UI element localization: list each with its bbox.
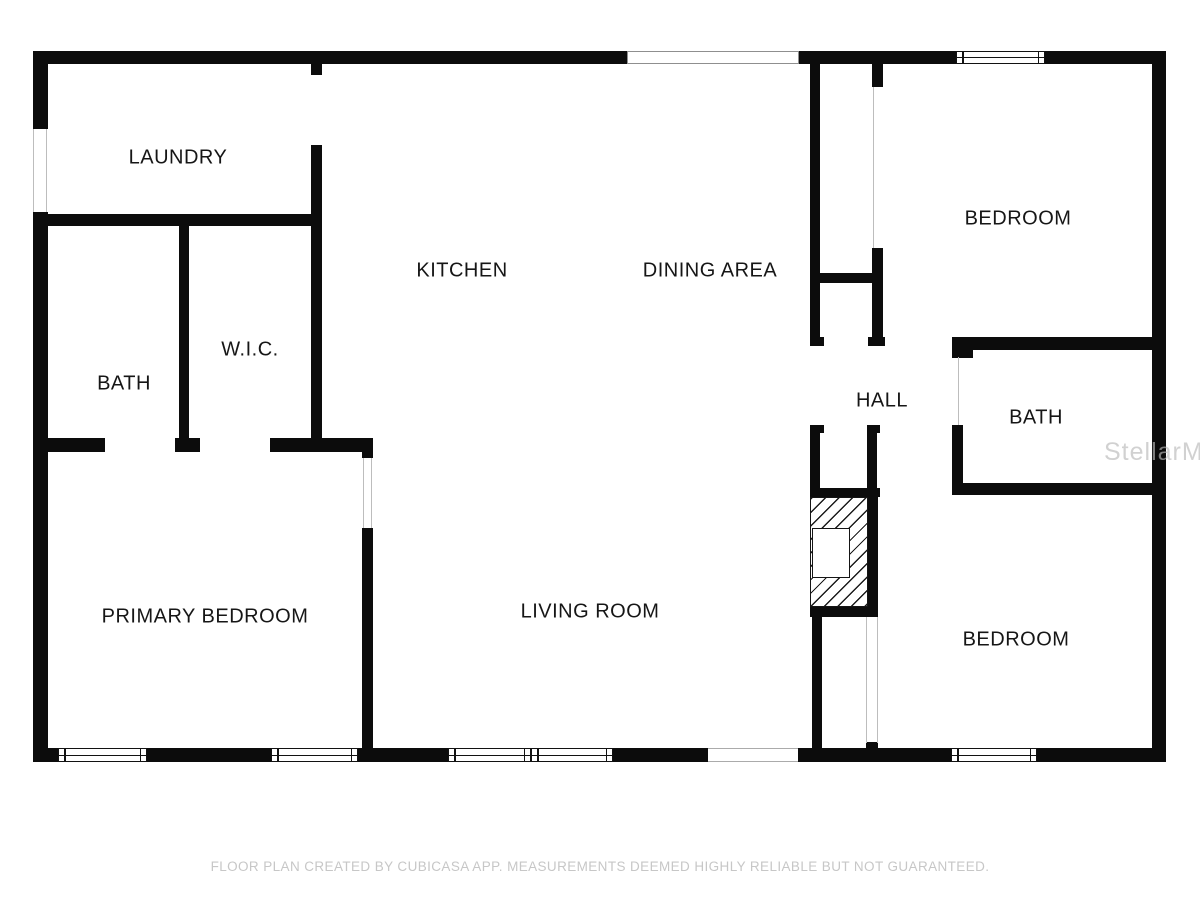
window-bottom-5 [951, 748, 1037, 762]
wall-fireplace-right [868, 497, 878, 607]
wall-bath2-top [952, 337, 1166, 350]
room-label-primary-bedroom: PRIMARY BEDROOM [102, 606, 309, 629]
fireplace [810, 497, 868, 607]
wall-niche-right [867, 425, 877, 492]
wall-outer-top-right-b [1045, 51, 1166, 64]
wall-closet-foot-right [868, 337, 885, 346]
wall-outer-top-right-a [799, 51, 956, 64]
closet2-line-b [877, 617, 878, 743]
wall-laundry-right-upper [311, 64, 322, 75]
wall-niche-left-foot [810, 425, 824, 433]
room-label-bedroom-top: BEDROOM [965, 208, 1072, 231]
window-bottom-3 [448, 748, 531, 762]
wall-outer-bottom-2 [147, 748, 271, 762]
window-midline [532, 755, 612, 756]
wall-outer-top-left [33, 51, 627, 64]
window-top [956, 51, 1045, 64]
wall-outer-left-lower [33, 212, 48, 762]
left-door-jamb-b [46, 129, 47, 212]
wall-lr-divider-stub [362, 438, 373, 458]
floorplan: LAUNDRYKITCHENDINING AREABEDROOMBATHW.I.… [0, 0, 1200, 900]
room-label-living-room: LIVING ROOM [521, 601, 660, 624]
wall-below-fireplace [812, 617, 822, 748]
wall-outer-bottom-6 [1037, 748, 1166, 762]
wall-bath-wic-divider [179, 226, 189, 440]
window-bottom-1 [58, 748, 147, 762]
wall-outer-bottom-5 [798, 748, 951, 762]
primary-door-line-a [363, 458, 364, 528]
left-door-jamb-a [33, 129, 34, 212]
wall-bath2-left [952, 425, 963, 487]
window-bottom-2 [271, 748, 358, 762]
window-midline [957, 57, 1044, 58]
bath2-door-line [958, 357, 959, 425]
wall-dining-hall-wall [810, 64, 820, 346]
wall-lr-divider-main [362, 528, 373, 748]
wall-laundry-bottom [33, 214, 321, 226]
room-label-kitchen: KITCHEN [416, 260, 507, 283]
wall-outer-bottom-4 [613, 748, 708, 762]
room-label-bedroom-bottom: BEDROOM [963, 629, 1070, 652]
window-midline [59, 755, 146, 756]
window-bottom-4 [531, 748, 613, 762]
wall-closet-right-lower [872, 248, 883, 346]
floorplan-canvas: LAUNDRYKITCHENDINING AREABEDROOMBATHW.I.… [0, 0, 1200, 900]
wall-bath2-left-stub [952, 350, 973, 358]
wall-niche-bottom [810, 488, 880, 497]
stellar-mls-watermark: StellarMLS [1104, 438, 1200, 467]
room-label-bath-left: BATH [97, 373, 151, 396]
wall-bathwic-bottom-right [270, 438, 372, 452]
firebox [812, 528, 850, 578]
opening-bottom [708, 748, 798, 762]
window-midline [952, 755, 1036, 756]
opening-top [627, 51, 799, 64]
room-label-wic: W.I.C. [221, 339, 278, 362]
wall-closet-foot-left [810, 337, 824, 346]
wall-outer-bottom-3 [358, 748, 448, 762]
wall-bathwic-bottom-mid [175, 438, 200, 452]
wall-bathwic-bottom-left [33, 438, 105, 452]
wall-bath2-bottom [952, 483, 1166, 495]
closet-opening-line [873, 87, 874, 248]
wall-outer-left-upper [33, 51, 48, 129]
room-label-bath-right: BATH [1009, 407, 1063, 430]
wall-niche-right-foot [867, 425, 880, 433]
room-label-laundry: LAUNDRY [129, 147, 228, 170]
wall-closet-right-upper [872, 64, 883, 87]
window-midline [272, 755, 357, 756]
wall-outer-right [1152, 51, 1166, 762]
wall-fireplace-bottom [810, 607, 878, 617]
wall-laundry-wic-right [311, 145, 322, 438]
primary-door-line-b [371, 458, 372, 528]
window-midline [449, 755, 530, 756]
room-label-hall: HALL [856, 390, 908, 413]
wall-outer-bottom-1 [33, 748, 58, 762]
floorplan-caption: FLOOR PLAN CREATED BY CUBICASA APP. MEAS… [0, 859, 1200, 874]
wall-niche-left [810, 425, 820, 492]
room-label-dining-area: DINING AREA [643, 260, 777, 283]
closet2-line-a [866, 617, 867, 743]
